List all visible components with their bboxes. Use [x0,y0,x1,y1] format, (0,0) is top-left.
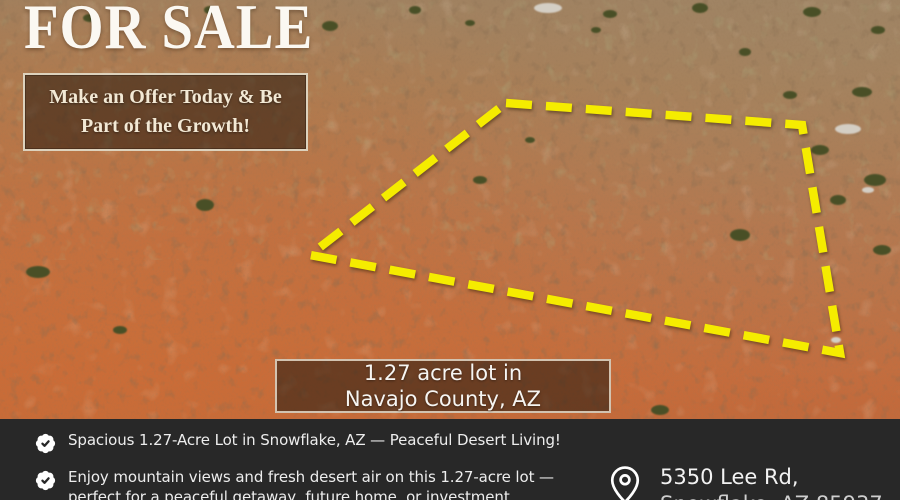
feature-item: Enjoy mountain views and fresh desert ai… [34,467,594,500]
for-sale-flyer: FOR SALE Make an Offer Today & Be Part o… [0,0,900,500]
feature-item: Spacious 1.27-Acre Lot in Snowflake, AZ … [34,430,594,459]
offer-banner: Make an Offer Today & Be Part of the Gro… [23,73,308,151]
address-lines: 5350 Lee Rd, Snowflake, AZ 85937 [660,464,883,500]
feature-list: Spacious 1.27-Acre Lot in Snowflake, AZ … [34,430,594,500]
lot-info-line1: 1.27 acre lot in [364,360,522,386]
lot-info-banner: 1.27 acre lot in Navajo County, AZ [275,359,611,413]
feature-text: Spacious 1.27-Acre Lot in Snowflake, AZ … [68,430,580,450]
lot-info-line2: Navajo County, AZ [345,386,541,412]
offer-banner-line2: Part of the Growth! [81,112,250,141]
address-line1: 5350 Lee Rd, [660,464,883,491]
details-bar: Spacious 1.27-Acre Lot in Snowflake, AZ … [0,419,900,500]
for-sale-headline: FOR SALE [24,0,313,58]
map-pin-icon [608,464,642,500]
badge-check-icon [34,432,57,459]
feature-text: Enjoy mountain views and fresh desert ai… [68,467,580,500]
address-block: 5350 Lee Rd, Snowflake, AZ 85937 [608,464,883,500]
offer-banner-line1: Make an Offer Today & Be [49,83,281,112]
badge-check-icon [34,469,57,496]
address-line2: Snowflake, AZ 85937 [660,491,883,500]
